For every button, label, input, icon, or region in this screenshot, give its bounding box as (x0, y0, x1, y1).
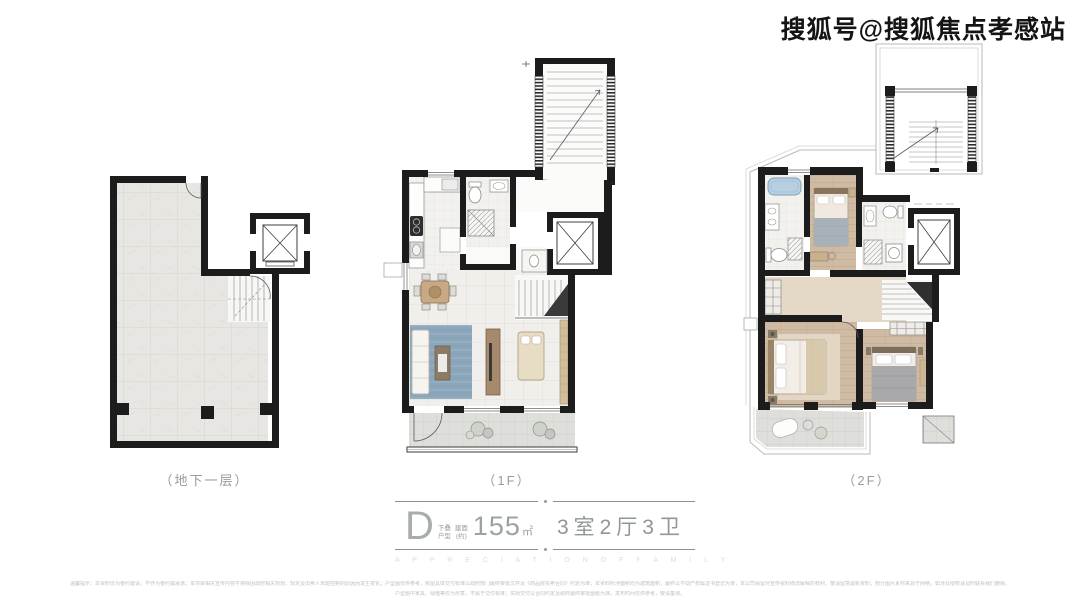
floorplan-2f (742, 42, 992, 472)
plant-icon (815, 427, 827, 439)
basement-stairs (228, 276, 270, 322)
floorplan-1f (372, 58, 642, 463)
disclaimer-line-2: 户型图中家具、绿植等仅为示意，不属于交付标准；实际交付以合同约定及政府最终审批图… (0, 591, 1080, 598)
titleblock-bottom-rule (395, 548, 695, 551)
unit-type-letter: D (405, 506, 434, 546)
tv-console (486, 329, 500, 395)
desk (810, 252, 828, 261)
f1-label: （1F） (372, 470, 642, 489)
f2-drawing (742, 42, 992, 467)
basement-drawing (97, 166, 312, 456)
nightstand (918, 347, 923, 355)
unit-area-tag: 建面 (约) (455, 525, 468, 541)
unit-area-value: 155 (473, 511, 521, 542)
slogan-en: A P P R E C I A T I O N O F F A M I L Y (395, 557, 695, 564)
basement-label: （地下一层） (97, 470, 312, 489)
f1-drawing (372, 58, 642, 458)
disclaimer-line-1: 温馨提示：本资料仅为要约邀请，不作为要约或承诺；本项目相关宣传内容不排除因政府相… (0, 581, 1080, 588)
common-stairwell-2f (885, 86, 977, 172)
rule-dot-icon (544, 548, 547, 551)
shower-icon (864, 240, 882, 264)
toilet-icon (530, 255, 539, 267)
ac-platform (384, 263, 402, 277)
unit-area-unit: ㎡ (522, 523, 533, 539)
bathtub-icon (768, 178, 801, 195)
watermark: 搜狐号@搜狐焦点孝感站 (781, 10, 1066, 46)
f2-stairs (882, 275, 939, 322)
ac-platform (744, 318, 757, 330)
nightstand (866, 347, 871, 355)
elevator-shaft (250, 213, 310, 274)
unit-rooms: 3室2厅3卫 (557, 511, 685, 541)
unit-titleblock: D 下叠 户型 建面 (约) 155 ㎡ 3室2厅3卫 A P P R E C … (395, 500, 695, 564)
cabinet (560, 320, 568, 404)
common-stairwell (522, 58, 615, 185)
floorplan-basement (97, 166, 312, 461)
master-bedroom (768, 330, 840, 404)
nightstand (849, 188, 856, 197)
toilet-icon (883, 206, 897, 218)
elevator-shaft-1f (547, 212, 604, 275)
rule-dot-icon (544, 500, 547, 503)
unit-type-tag: 下叠 户型 (438, 525, 451, 541)
balcony-1f (407, 413, 577, 452)
disclaimer: 温馨提示：本资料仅为要约邀请，不作为要约或承诺；本项目相关宣传内容不排除因政府相… (0, 581, 1080, 600)
f2-label: （2F） (742, 470, 992, 489)
wc-1f (522, 250, 547, 272)
shower-icon (788, 238, 802, 260)
toilet-icon (469, 187, 481, 203)
elevator-shaft-2f (908, 204, 960, 275)
toilet-icon (771, 249, 787, 262)
tv-icon (489, 343, 492, 381)
